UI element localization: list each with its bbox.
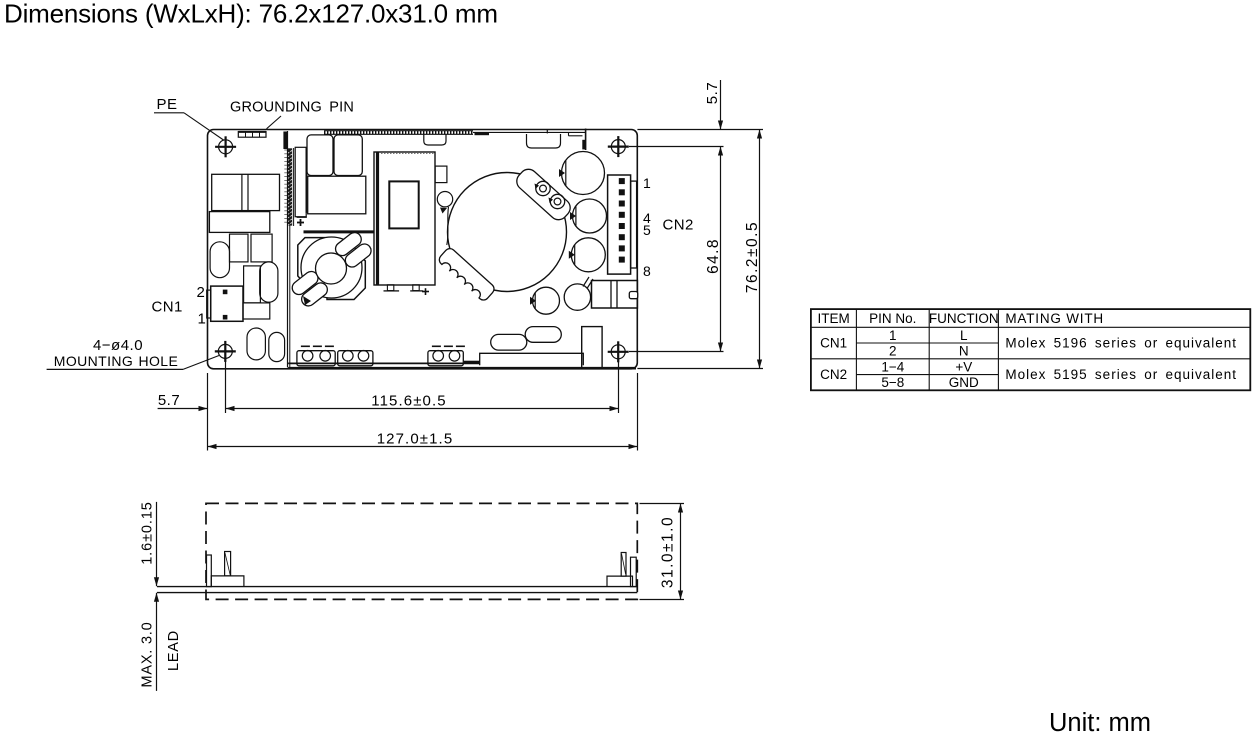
svg-text:8: 8: [643, 263, 651, 279]
svg-text:MATING WITH: MATING WITH: [1005, 311, 1104, 326]
svg-text:MAX. 3.0: MAX. 3.0: [140, 621, 156, 687]
svg-text:1: 1: [643, 175, 651, 191]
svg-text:5: 5: [643, 222, 651, 238]
svg-text:Unit: mm: Unit: mm: [1049, 709, 1151, 737]
svg-text:PE: PE: [157, 96, 178, 113]
svg-text:2: 2: [197, 284, 205, 301]
svg-text:Molex 5196 series or equiv: Molex 5196 series or equivalent: [1005, 336, 1237, 351]
svg-text:2: 2: [889, 344, 897, 359]
svg-text:ITEM: ITEM: [818, 311, 850, 326]
svg-text:FUNCTION: FUNCTION: [929, 311, 999, 326]
svg-text:CN2: CN2: [663, 217, 694, 234]
svg-text:PIN No.: PIN No.: [869, 311, 916, 326]
svg-text:31.0±1.0: 31.0±1.0: [660, 516, 677, 588]
svg-text:1: 1: [889, 328, 897, 343]
svg-text:+V: +V: [955, 359, 972, 374]
svg-text:1.6±0.15: 1.6±0.15: [140, 501, 156, 565]
svg-text:Molex 5195 series or equiv: Molex 5195 series or equivalent: [1005, 367, 1237, 382]
svg-text:GND: GND: [949, 375, 979, 390]
svg-text:5.7: 5.7: [704, 82, 721, 104]
svg-text:1: 1: [198, 311, 206, 328]
svg-text:76.2±0.5: 76.2±0.5: [744, 221, 761, 293]
svg-text:4−ø4.0: 4−ø4.0: [93, 337, 143, 354]
svg-text:MOUNTING HOLE: MOUNTING HOLE: [54, 353, 178, 369]
svg-text:L: L: [960, 328, 968, 343]
svg-text:LEAD: LEAD: [166, 630, 182, 671]
svg-text:GROUNDING PIN: GROUNDING PIN: [230, 100, 354, 116]
svg-text:Dimensions (WxLxH): 76.2x127.0: Dimensions (WxLxH): 76.2x127.0x31.0 mm: [4, 0, 498, 29]
svg-text:N: N: [959, 344, 969, 359]
svg-text:1−4: 1−4: [881, 359, 904, 374]
svg-text:CN1: CN1: [152, 299, 183, 316]
svg-text:64.8: 64.8: [705, 238, 722, 274]
svg-text:CN1: CN1: [820, 336, 847, 351]
svg-text:5.7: 5.7: [158, 392, 180, 409]
svg-text:127.0±1.5: 127.0±1.5: [377, 431, 454, 448]
svg-text:CN2: CN2: [820, 367, 847, 382]
svg-text:5−8: 5−8: [881, 375, 904, 390]
svg-text:115.6±0.5: 115.6±0.5: [371, 393, 446, 410]
